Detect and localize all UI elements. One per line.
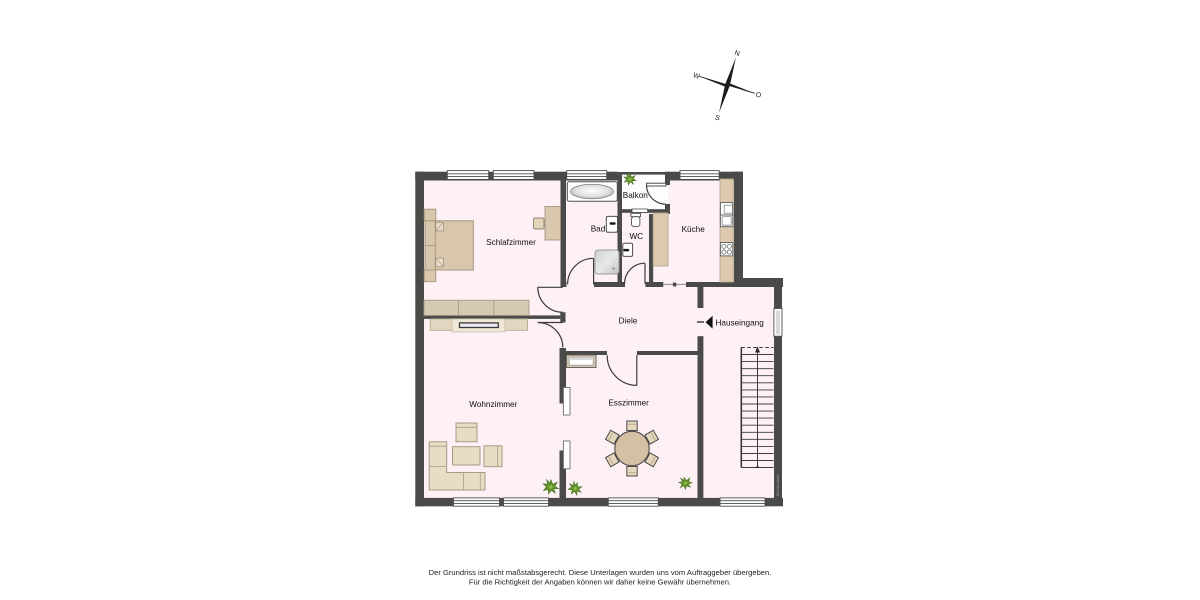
svg-text:WC: WC [629, 232, 643, 241]
svg-text:Balkon: Balkon [623, 191, 648, 200]
svg-text:Der Grundriss ist nicht maßsta: Der Grundriss ist nicht maßstabsgerecht.… [429, 568, 772, 577]
svg-text:Für die Richtigkeit der Angabe: Für die Richtigkeit der Angaben können w… [469, 577, 731, 586]
svg-text:McGrundriss: McGrundriss [776, 474, 780, 496]
svg-text:Hauseingang: Hauseingang [716, 319, 765, 328]
svg-text:Küche: Küche [682, 225, 706, 234]
svg-text:Esszimmer: Esszimmer [608, 399, 649, 408]
svg-text:Diele: Diele [619, 316, 638, 325]
svg-text:Bad: Bad [591, 225, 606, 234]
svg-text:Wohnzimmer: Wohnzimmer [469, 400, 517, 409]
svg-text:Schlafzimmer: Schlafzimmer [486, 238, 536, 247]
